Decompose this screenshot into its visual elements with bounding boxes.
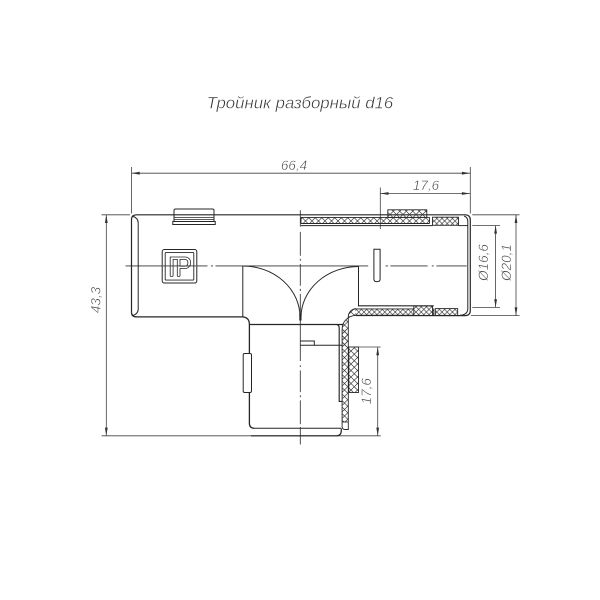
svg-text:43,3: 43,3 — [88, 286, 103, 313]
svg-text:Ø16,6: Ø16,6 — [476, 244, 491, 282]
svg-text:Тройник разборный d16: Тройник разборный d16 — [207, 94, 394, 113]
svg-text:17,6: 17,6 — [413, 178, 440, 193]
svg-text:66,4: 66,4 — [281, 158, 307, 173]
svg-text:17,6: 17,6 — [359, 378, 374, 405]
svg-text:Ø20,1: Ø20,1 — [499, 244, 514, 282]
